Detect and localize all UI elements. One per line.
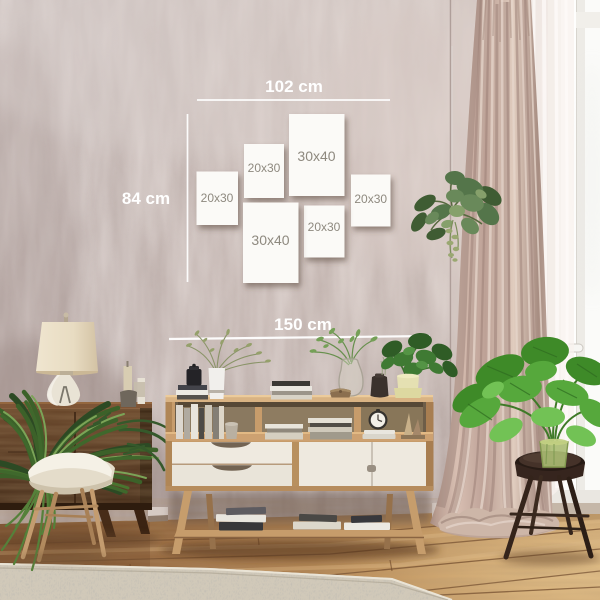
svg-text:30x40: 30x40 <box>251 232 289 248</box>
svg-text:102 cm: 102 cm <box>265 77 323 96</box>
svg-text:20x30: 20x30 <box>248 161 281 175</box>
svg-text:150 cm: 150 cm <box>274 315 332 334</box>
svg-text:20x30: 20x30 <box>354 192 387 206</box>
svg-text:20x30: 20x30 <box>201 191 234 205</box>
svg-text:30x40: 30x40 <box>297 148 335 164</box>
svg-text:84 cm: 84 cm <box>122 189 170 208</box>
svg-text:20x30: 20x30 <box>308 220 341 234</box>
